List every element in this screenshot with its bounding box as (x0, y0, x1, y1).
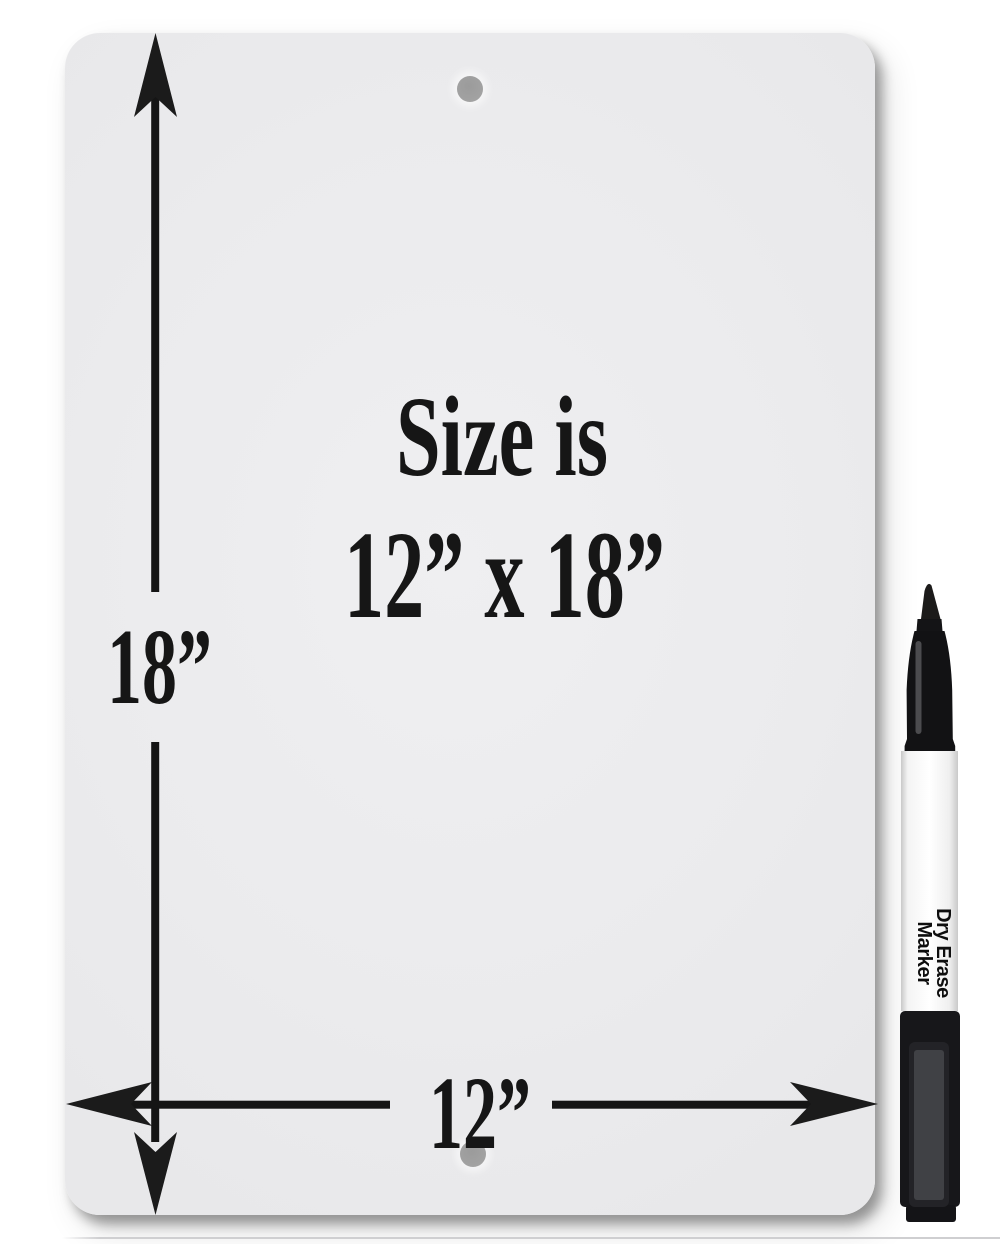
svg-text:12” x 18”: 12” x 18” (344, 507, 665, 645)
svg-text:18”: 18” (107, 608, 212, 727)
svg-text:Size is: Size is (396, 373, 608, 500)
svg-text:12”: 12” (429, 1056, 531, 1171)
